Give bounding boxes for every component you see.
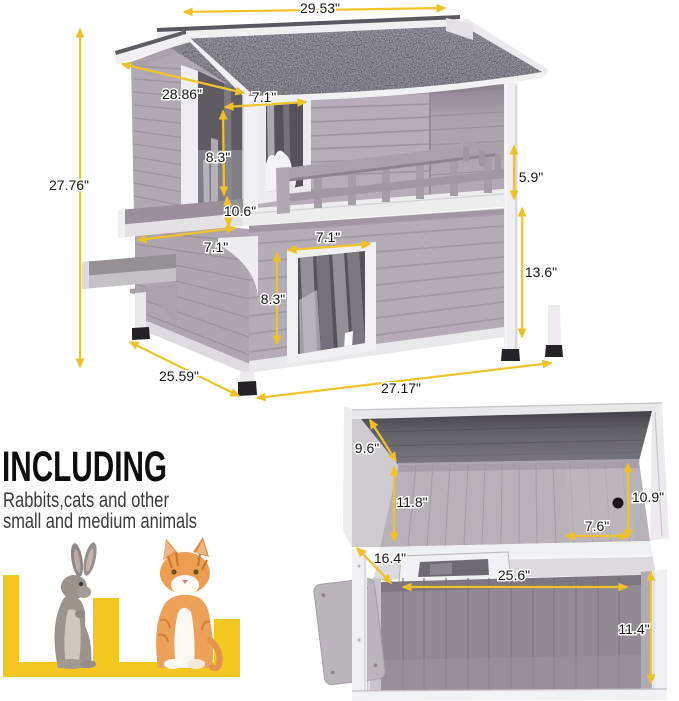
svg-text:7.6": 7.6"	[585, 518, 609, 534]
svg-text:11.8": 11.8"	[396, 494, 427, 510]
svg-text:5.9": 5.9"	[519, 169, 543, 185]
svg-text:28.86": 28.86"	[162, 86, 202, 102]
svg-text:16.4": 16.4"	[374, 550, 406, 566]
svg-text:7.1": 7.1"	[252, 89, 276, 105]
svg-text:INCLUDING: INCLUDING	[2, 443, 167, 491]
svg-text:29.53": 29.53"	[300, 0, 340, 16]
svg-text:10.6": 10.6"	[224, 203, 256, 219]
svg-text:11.4": 11.4"	[618, 621, 649, 637]
svg-text:25.6": 25.6"	[498, 567, 530, 583]
svg-text:8.3": 8.3"	[206, 149, 230, 165]
svg-text:7.1": 7.1"	[204, 239, 228, 255]
svg-text:8.3": 8.3"	[261, 291, 285, 307]
svg-text:9.6": 9.6"	[355, 440, 379, 456]
svg-text:27.76": 27.76"	[49, 177, 89, 193]
svg-text:27.17": 27.17"	[381, 380, 421, 396]
svg-text:7.1": 7.1"	[316, 229, 340, 245]
svg-text:13.6": 13.6"	[525, 264, 557, 280]
svg-text:Rabbits,cats and other: Rabbits,cats and other	[3, 489, 169, 512]
svg-text:10.9": 10.9"	[632, 489, 664, 505]
svg-text:small and medium animals: small and medium animals	[3, 510, 197, 533]
svg-text:25.59": 25.59"	[159, 368, 199, 384]
